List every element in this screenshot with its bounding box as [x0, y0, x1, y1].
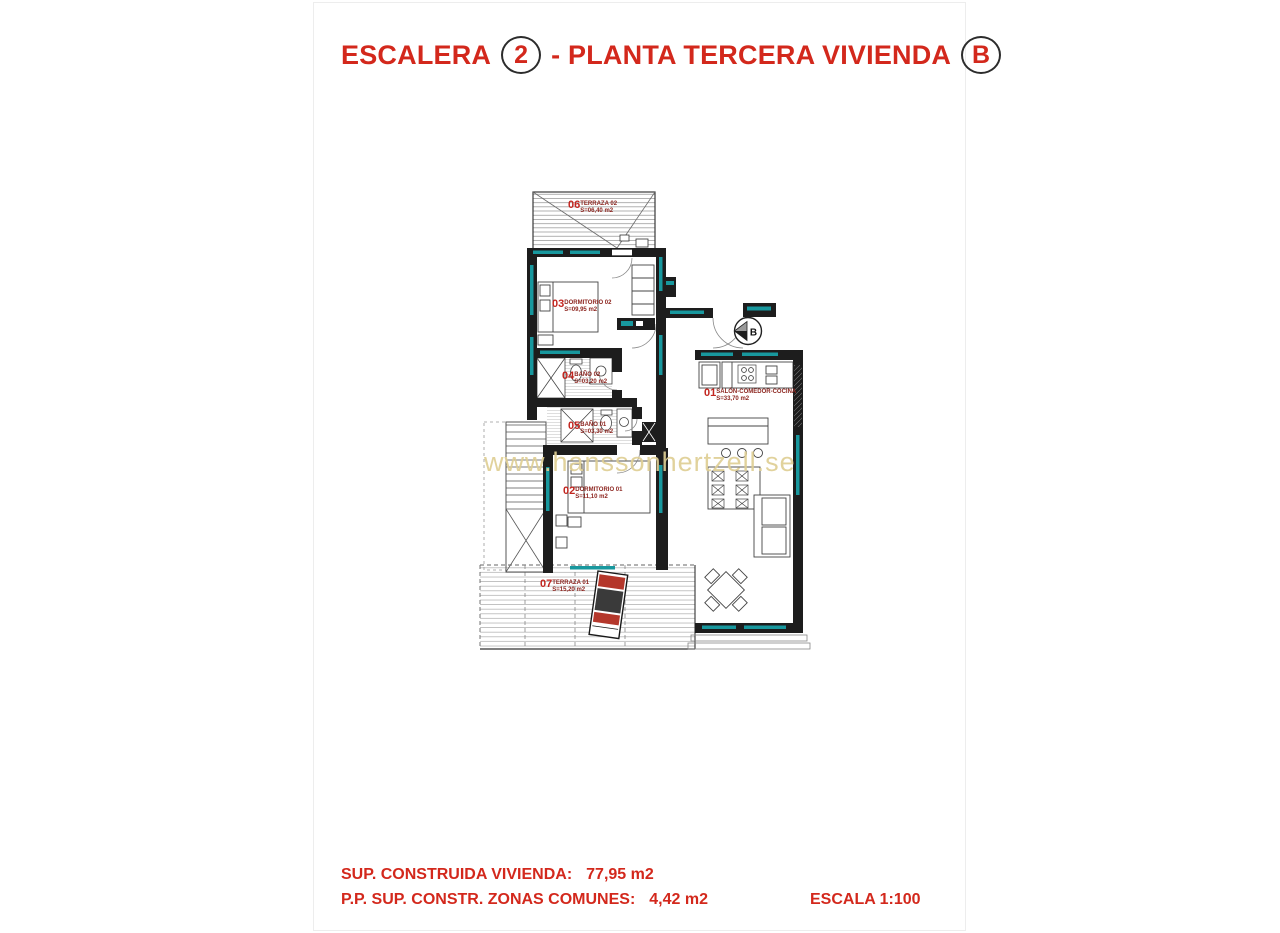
scale-note: ESCALA 1:100	[810, 891, 921, 909]
plan-page: ESCALERA 2 - PLANTA TERCERA VIVIENDA B	[0, 0, 1280, 933]
stair-number: 2	[514, 41, 528, 70]
title-part2: - PLANTA TERCERA VIVIENDA	[551, 40, 951, 71]
room-label-dormitorio-01: 02 DORMITORIO 01S=11,10 m2	[563, 486, 622, 500]
stair-number-badge: 2	[501, 36, 541, 74]
entrance-marker-letter: B	[750, 328, 757, 339]
room-area: S=11,10 m2	[575, 494, 622, 501]
room-name: TERRAZA 02	[580, 201, 617, 208]
room-area: S=03,30 m2	[580, 429, 613, 436]
room-name: DORMITORIO 01	[575, 487, 622, 494]
room-area: S=33,70 m2	[716, 396, 796, 403]
room-number: 04	[562, 371, 574, 382]
footer-common-area-label: P.P. SUP. CONSTR. ZONAS COMUNES:	[341, 891, 635, 908]
room-label-bano-01: 05 BAÑO 01S=03,30 m2	[568, 421, 613, 435]
room-name: DORMITORIO 02	[564, 300, 611, 307]
room-label-terraza-01: 07 TERRAZA 01S=15,20 m2	[540, 579, 589, 593]
page-title: ESCALERA 2 - PLANTA TERCERA VIVIENDA B	[341, 36, 1001, 74]
room-label-salon: 01 SALÓN-COMEDOR-COCINAS=33,70 m2	[704, 388, 796, 402]
room-area: S=03,20 m2	[574, 379, 607, 386]
unit-letter: B	[972, 41, 990, 70]
title-part1: ESCALERA	[341, 40, 491, 71]
balcony-steps	[688, 635, 810, 649]
entrance-marker: B	[735, 318, 762, 345]
footer-built-area-value: 77,95 m2	[586, 866, 654, 883]
floor-plan-drawing: B	[470, 185, 815, 660]
room-name: BAÑO 02	[574, 372, 607, 379]
room-label-dormitorio-02: 03 DORMITORIO 02S=09,95 m2	[552, 299, 611, 313]
footer-built-area: SUP. CONSTRUIDA VIVIENDA:77,95 m2	[341, 866, 654, 884]
room-number: 07	[540, 579, 552, 590]
terrace-01-deck	[480, 565, 695, 649]
room-number: 01	[704, 388, 716, 399]
room-area: S=06,40 m2	[580, 208, 617, 215]
room-name: SALÓN-COMEDOR-COCINA	[716, 389, 796, 396]
room-label-bano-02: 04 BAÑO 02S=03,20 m2	[562, 371, 607, 385]
room-number: 06	[568, 200, 580, 211]
footer-built-area-label: SUP. CONSTRUIDA VIVIENDA:	[341, 866, 572, 883]
room-name: TERRAZA 01	[552, 580, 589, 587]
watermark: www.hanssonhertzell.se	[484, 447, 796, 478]
footer-common-area: P.P. SUP. CONSTR. ZONAS COMUNES:4,42 m2	[341, 891, 708, 909]
footer-common-area-value: 4,42 m2	[649, 891, 708, 908]
floor-plan: B 06 TERRAZA 02S=06,40 m2 03 DORMITORIO …	[470, 185, 815, 660]
unit-letter-badge: B	[961, 36, 1001, 74]
room-number: 05	[568, 421, 580, 432]
room-number: 02	[563, 486, 575, 497]
terrace-door-gap	[612, 249, 632, 256]
room-label-terraza-02: 06 TERRAZA 02S=06,40 m2	[568, 200, 617, 214]
room-area: S=09,95 m2	[564, 307, 611, 314]
room-name: BAÑO 01	[580, 422, 613, 429]
room-number: 03	[552, 299, 564, 310]
room-area: S=15,20 m2	[552, 587, 589, 594]
staircase	[484, 422, 546, 572]
